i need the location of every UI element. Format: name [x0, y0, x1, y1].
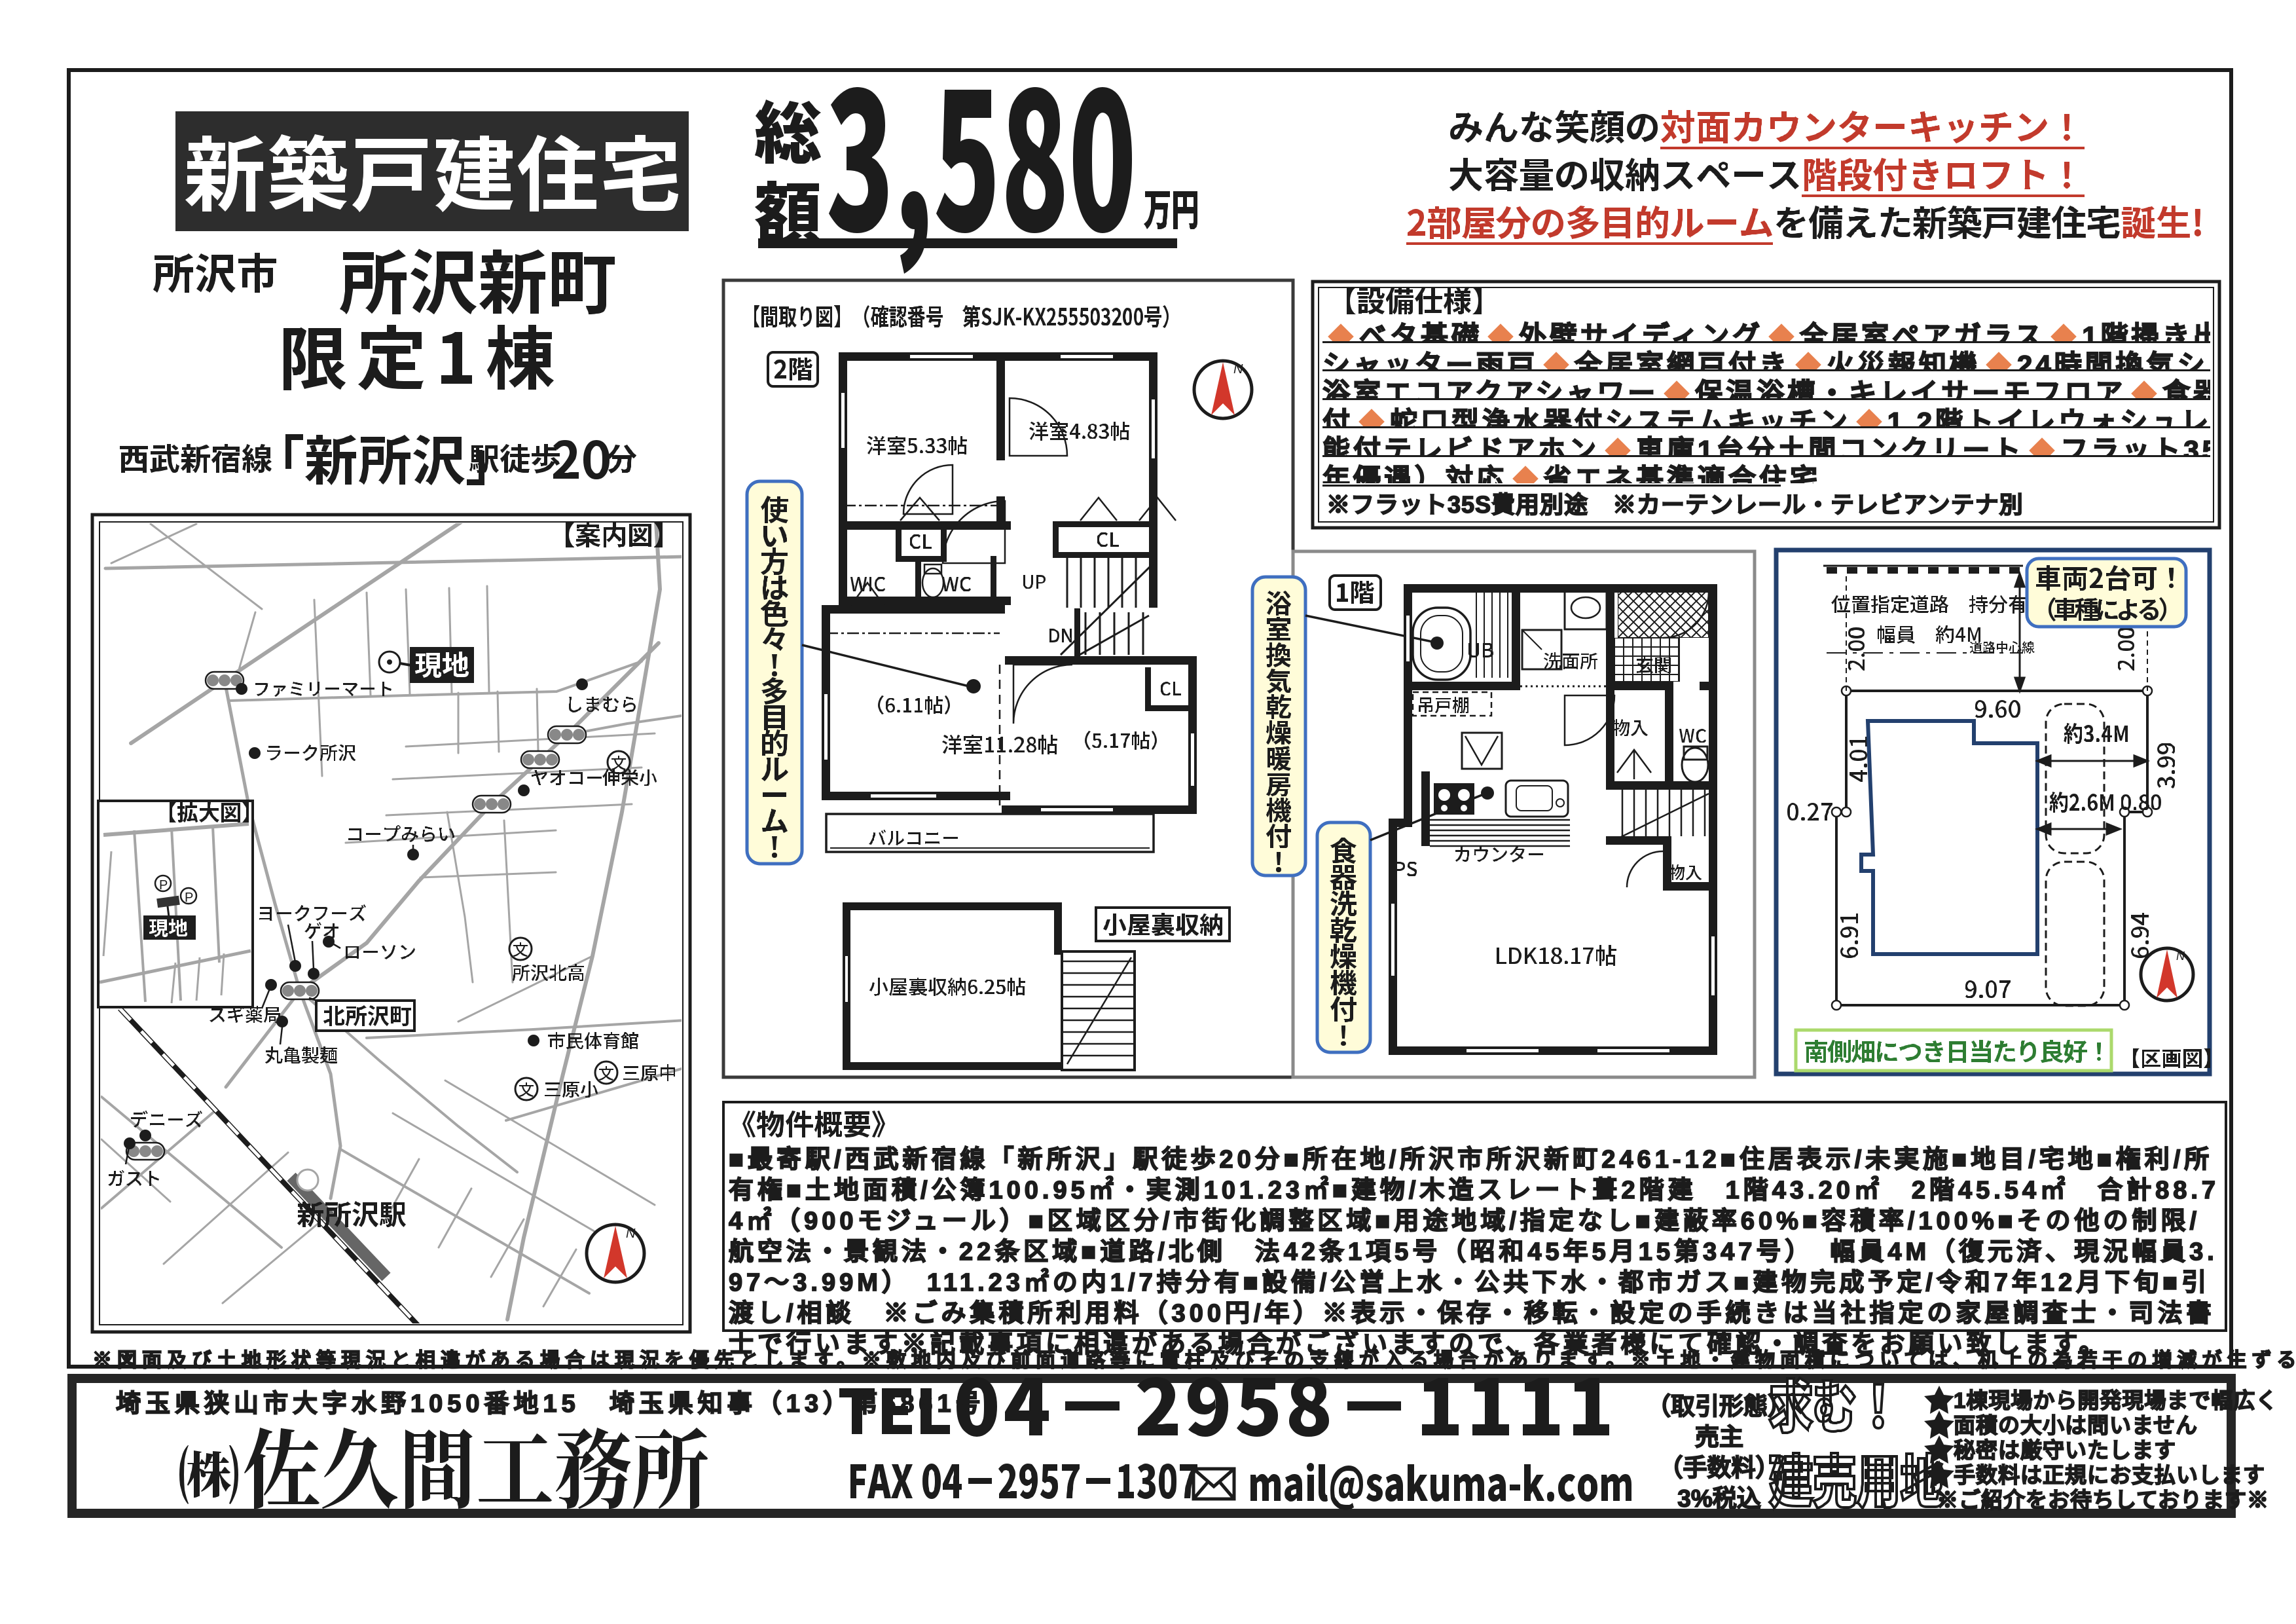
svg-text:P: P — [185, 891, 193, 905]
svg-text:N: N — [2176, 950, 2185, 963]
svg-text:N: N — [626, 1227, 636, 1241]
svg-text:P: P — [159, 878, 168, 893]
svg-text:N: N — [1233, 362, 1243, 377]
